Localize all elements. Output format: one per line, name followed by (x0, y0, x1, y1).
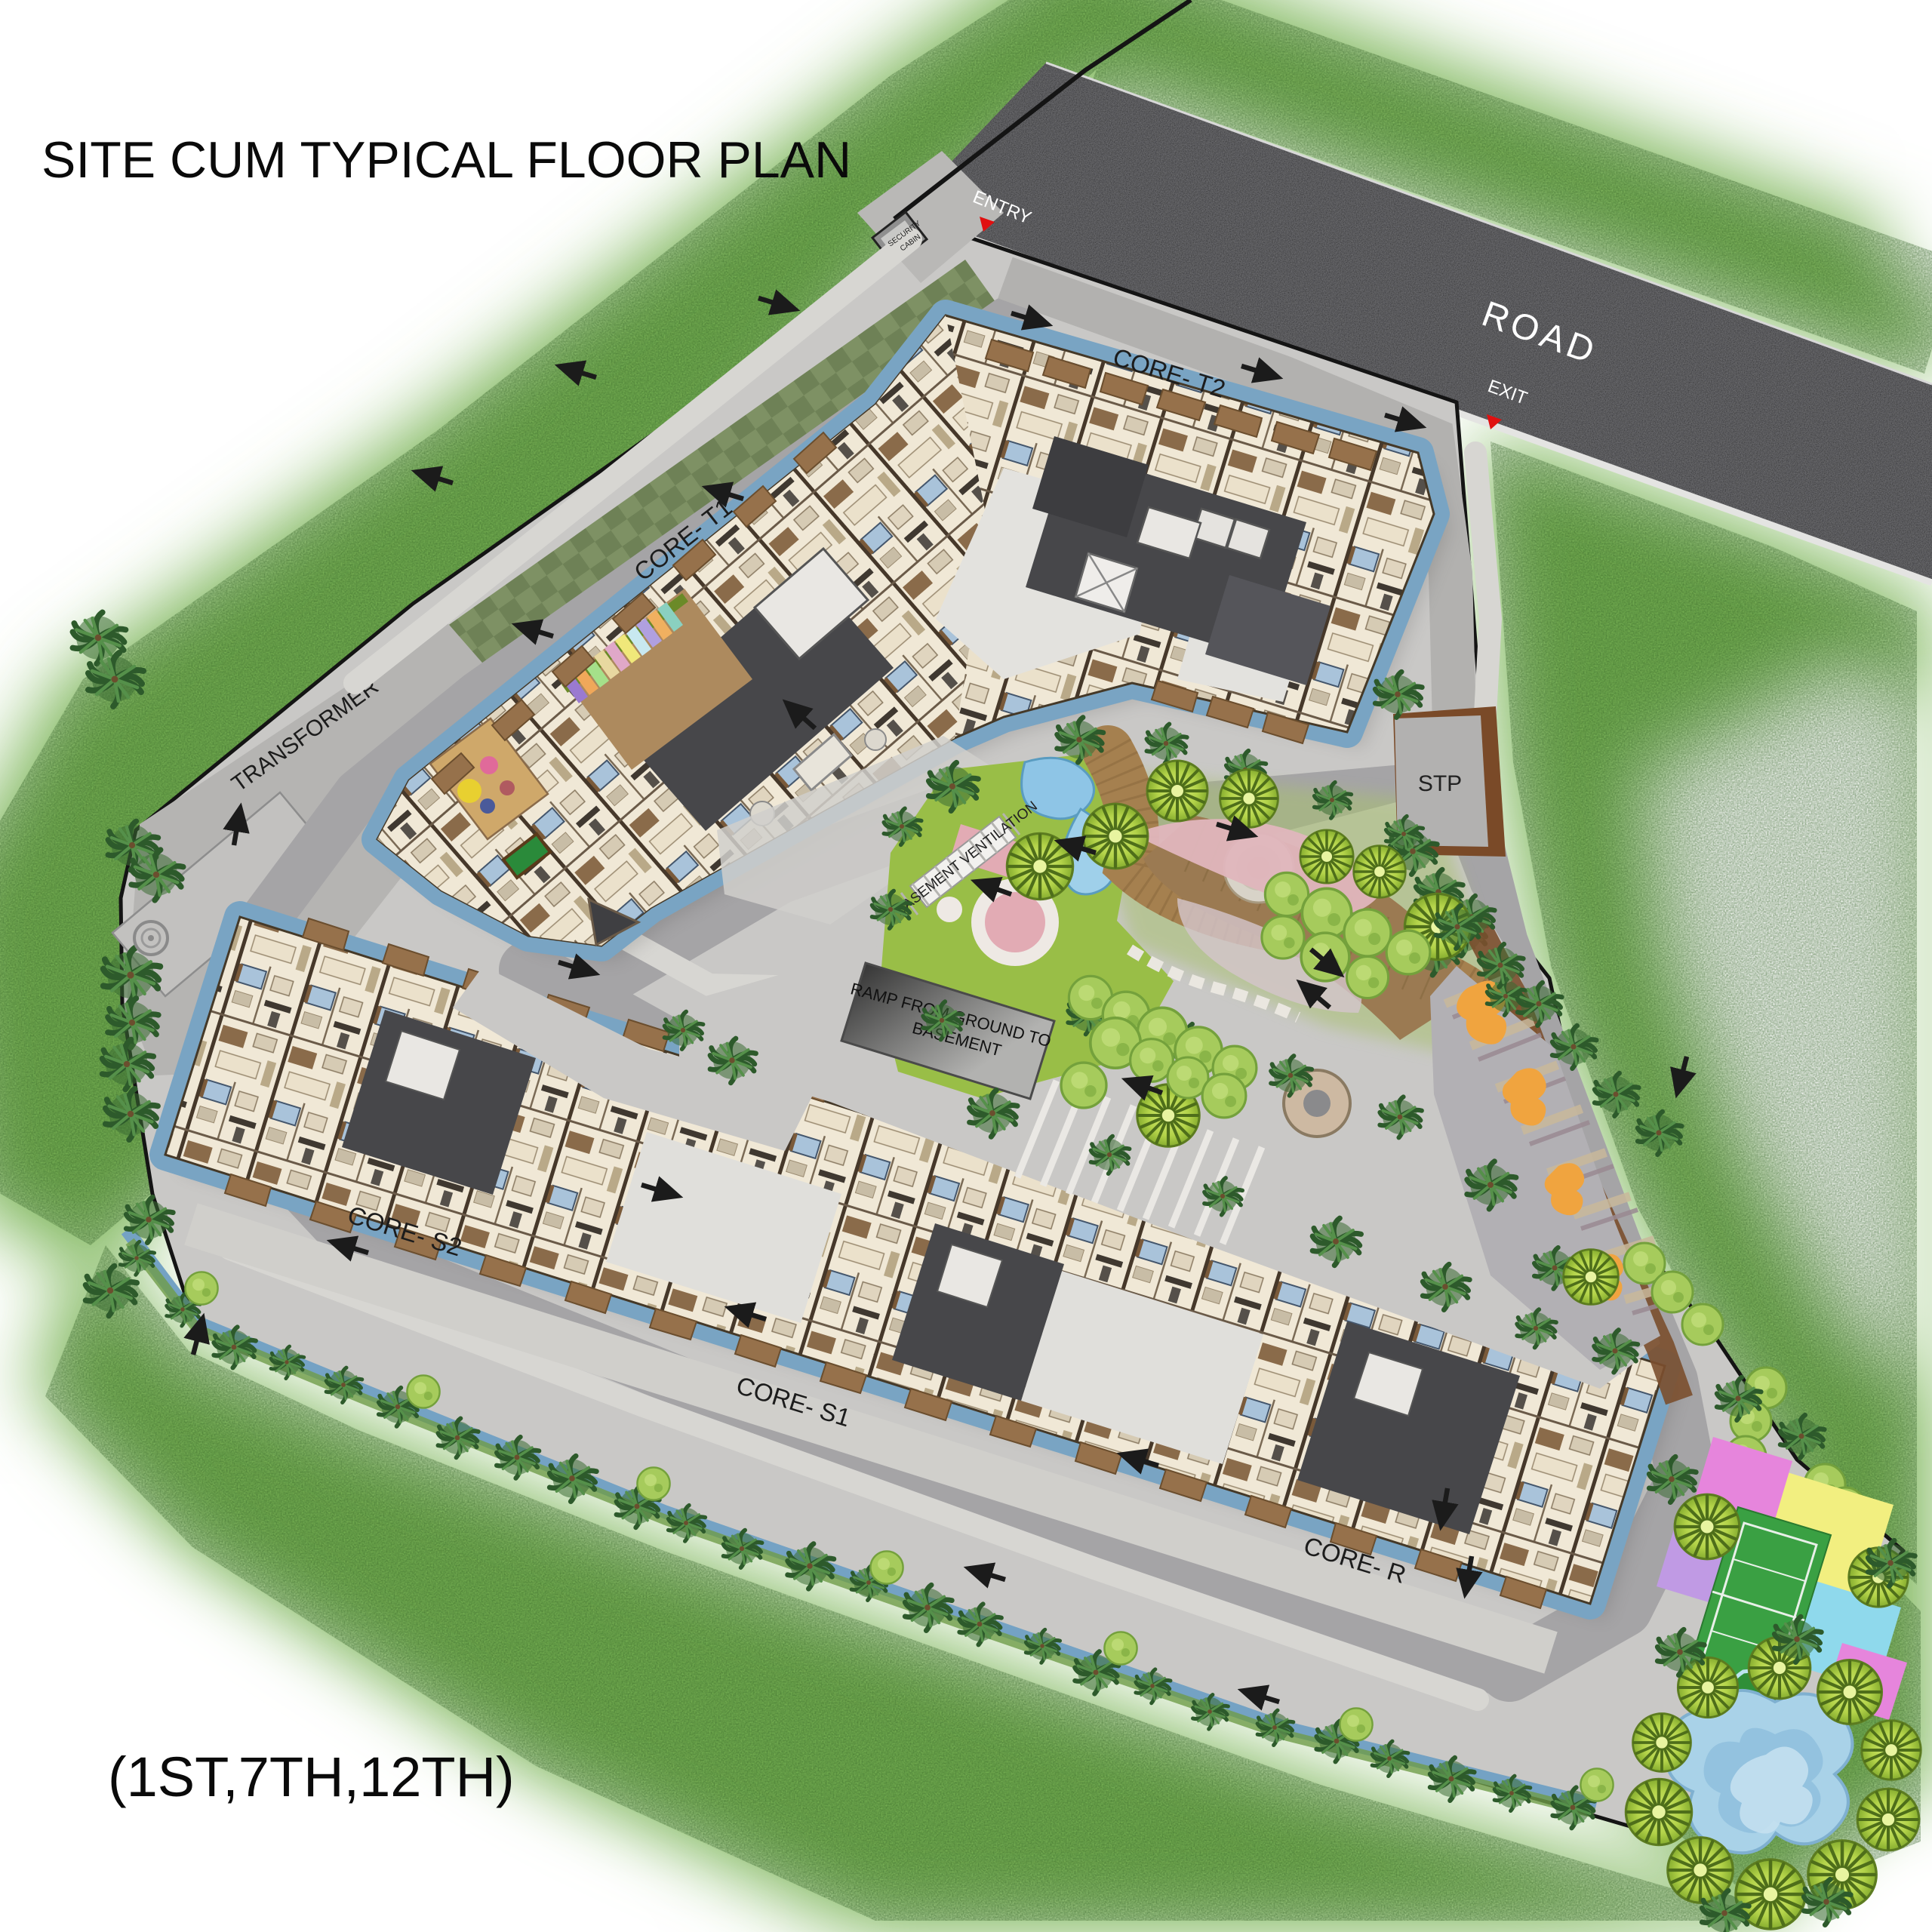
svg-text:STP: STP (1418, 771, 1462, 796)
svg-text:SITE CUM TYPICAL FLOOR PLAN: SITE CUM TYPICAL FLOOR PLAN (42, 131, 851, 189)
svg-text:(1ST,7TH,12TH): (1ST,7TH,12TH) (108, 1746, 515, 1808)
